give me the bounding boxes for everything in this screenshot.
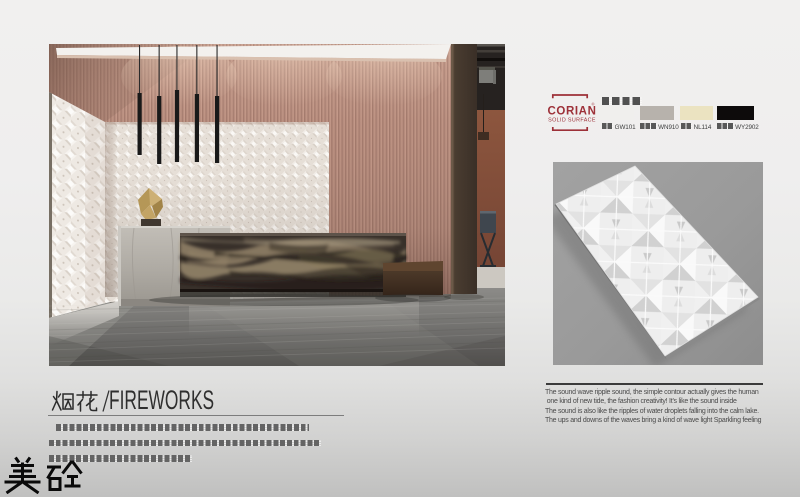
svg-text:SOLID SURFACE: SOLID SURFACE [548, 118, 596, 124]
svg-text:®: ® [592, 102, 595, 107]
svg-text:CORIAN: CORIAN [548, 106, 597, 118]
